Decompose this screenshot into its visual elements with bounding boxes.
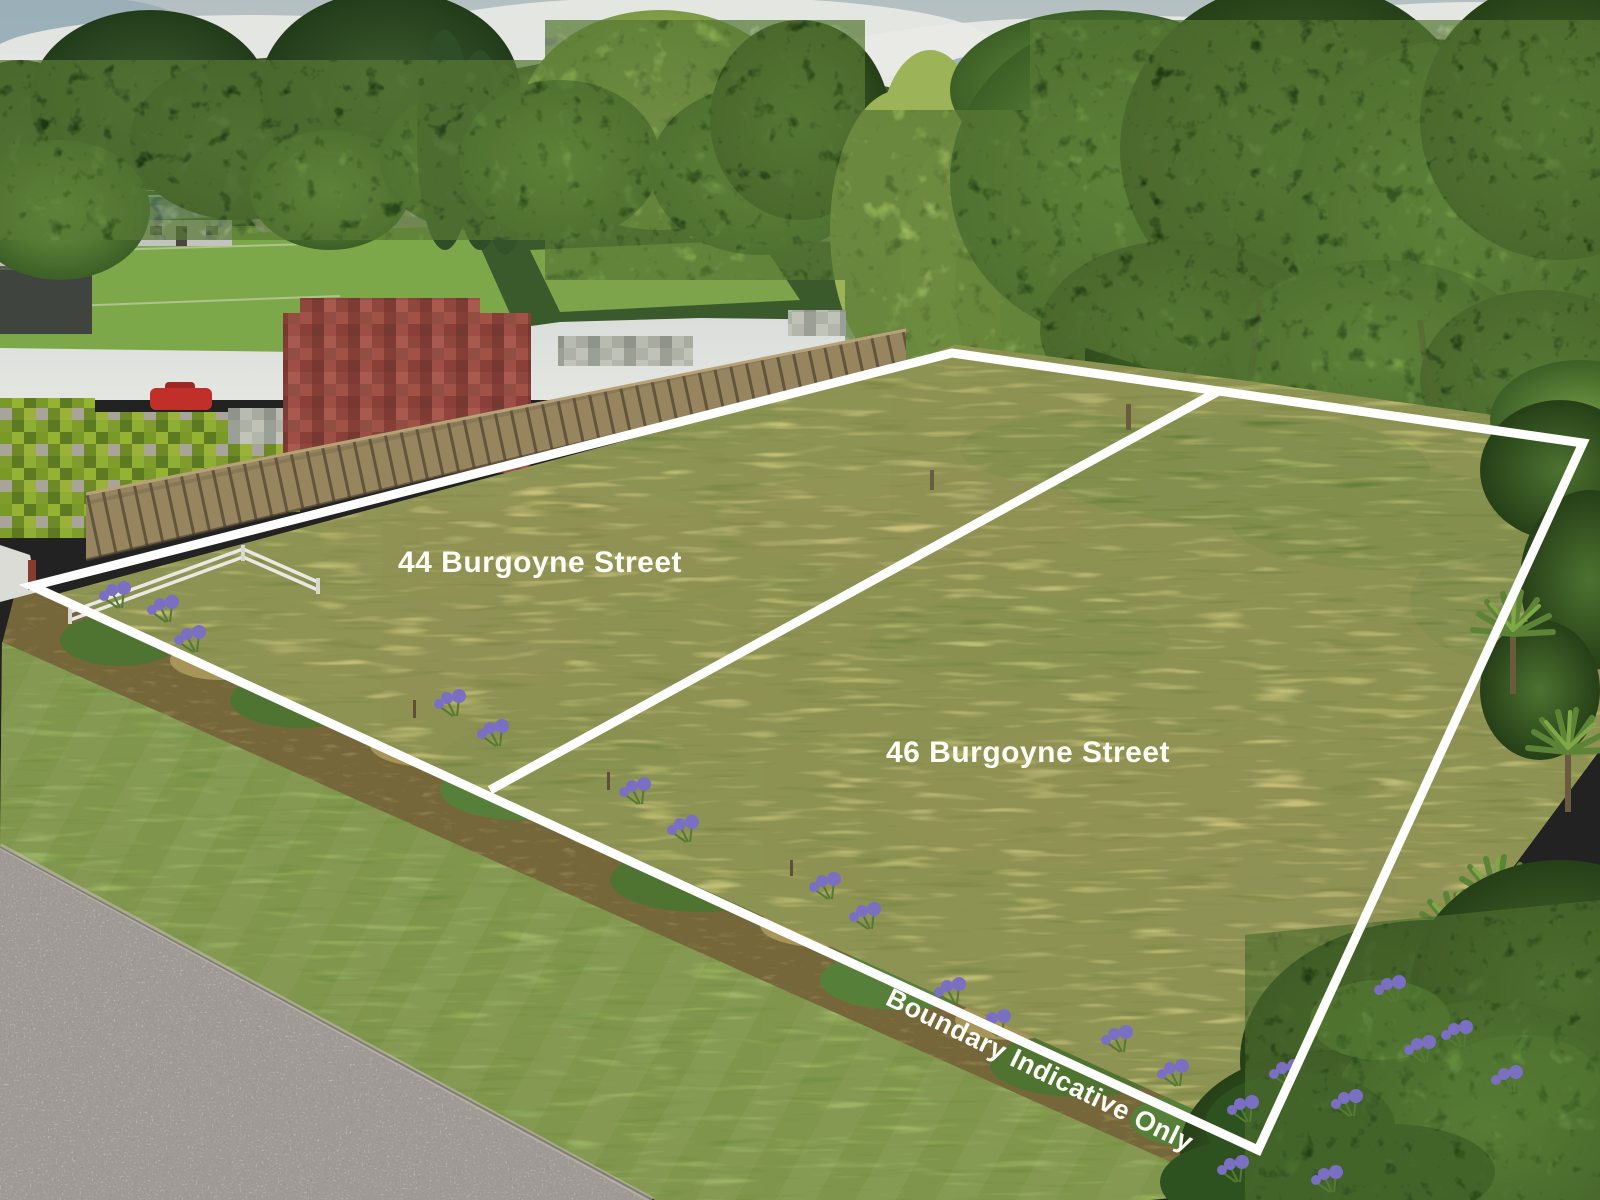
privacy-mosaic-small-2 — [788, 310, 846, 336]
aerial-photo-canvas: 44 Burgoyne Street 46 Burgoyne Street Bo… — [0, 0, 1600, 1200]
aerial-photo: 44 Burgoyne Street 46 Burgoyne Street Bo… — [0, 0, 1600, 1200]
left-gate — [0, 545, 38, 602]
fence-post — [1126, 404, 1131, 430]
lot-44-label: 44 Burgoyne Street — [398, 546, 682, 579]
lot-46-label: 46 Burgoyne Street — [886, 736, 1170, 769]
privacy-mosaic-small — [558, 336, 693, 366]
fence-post — [930, 470, 934, 490]
